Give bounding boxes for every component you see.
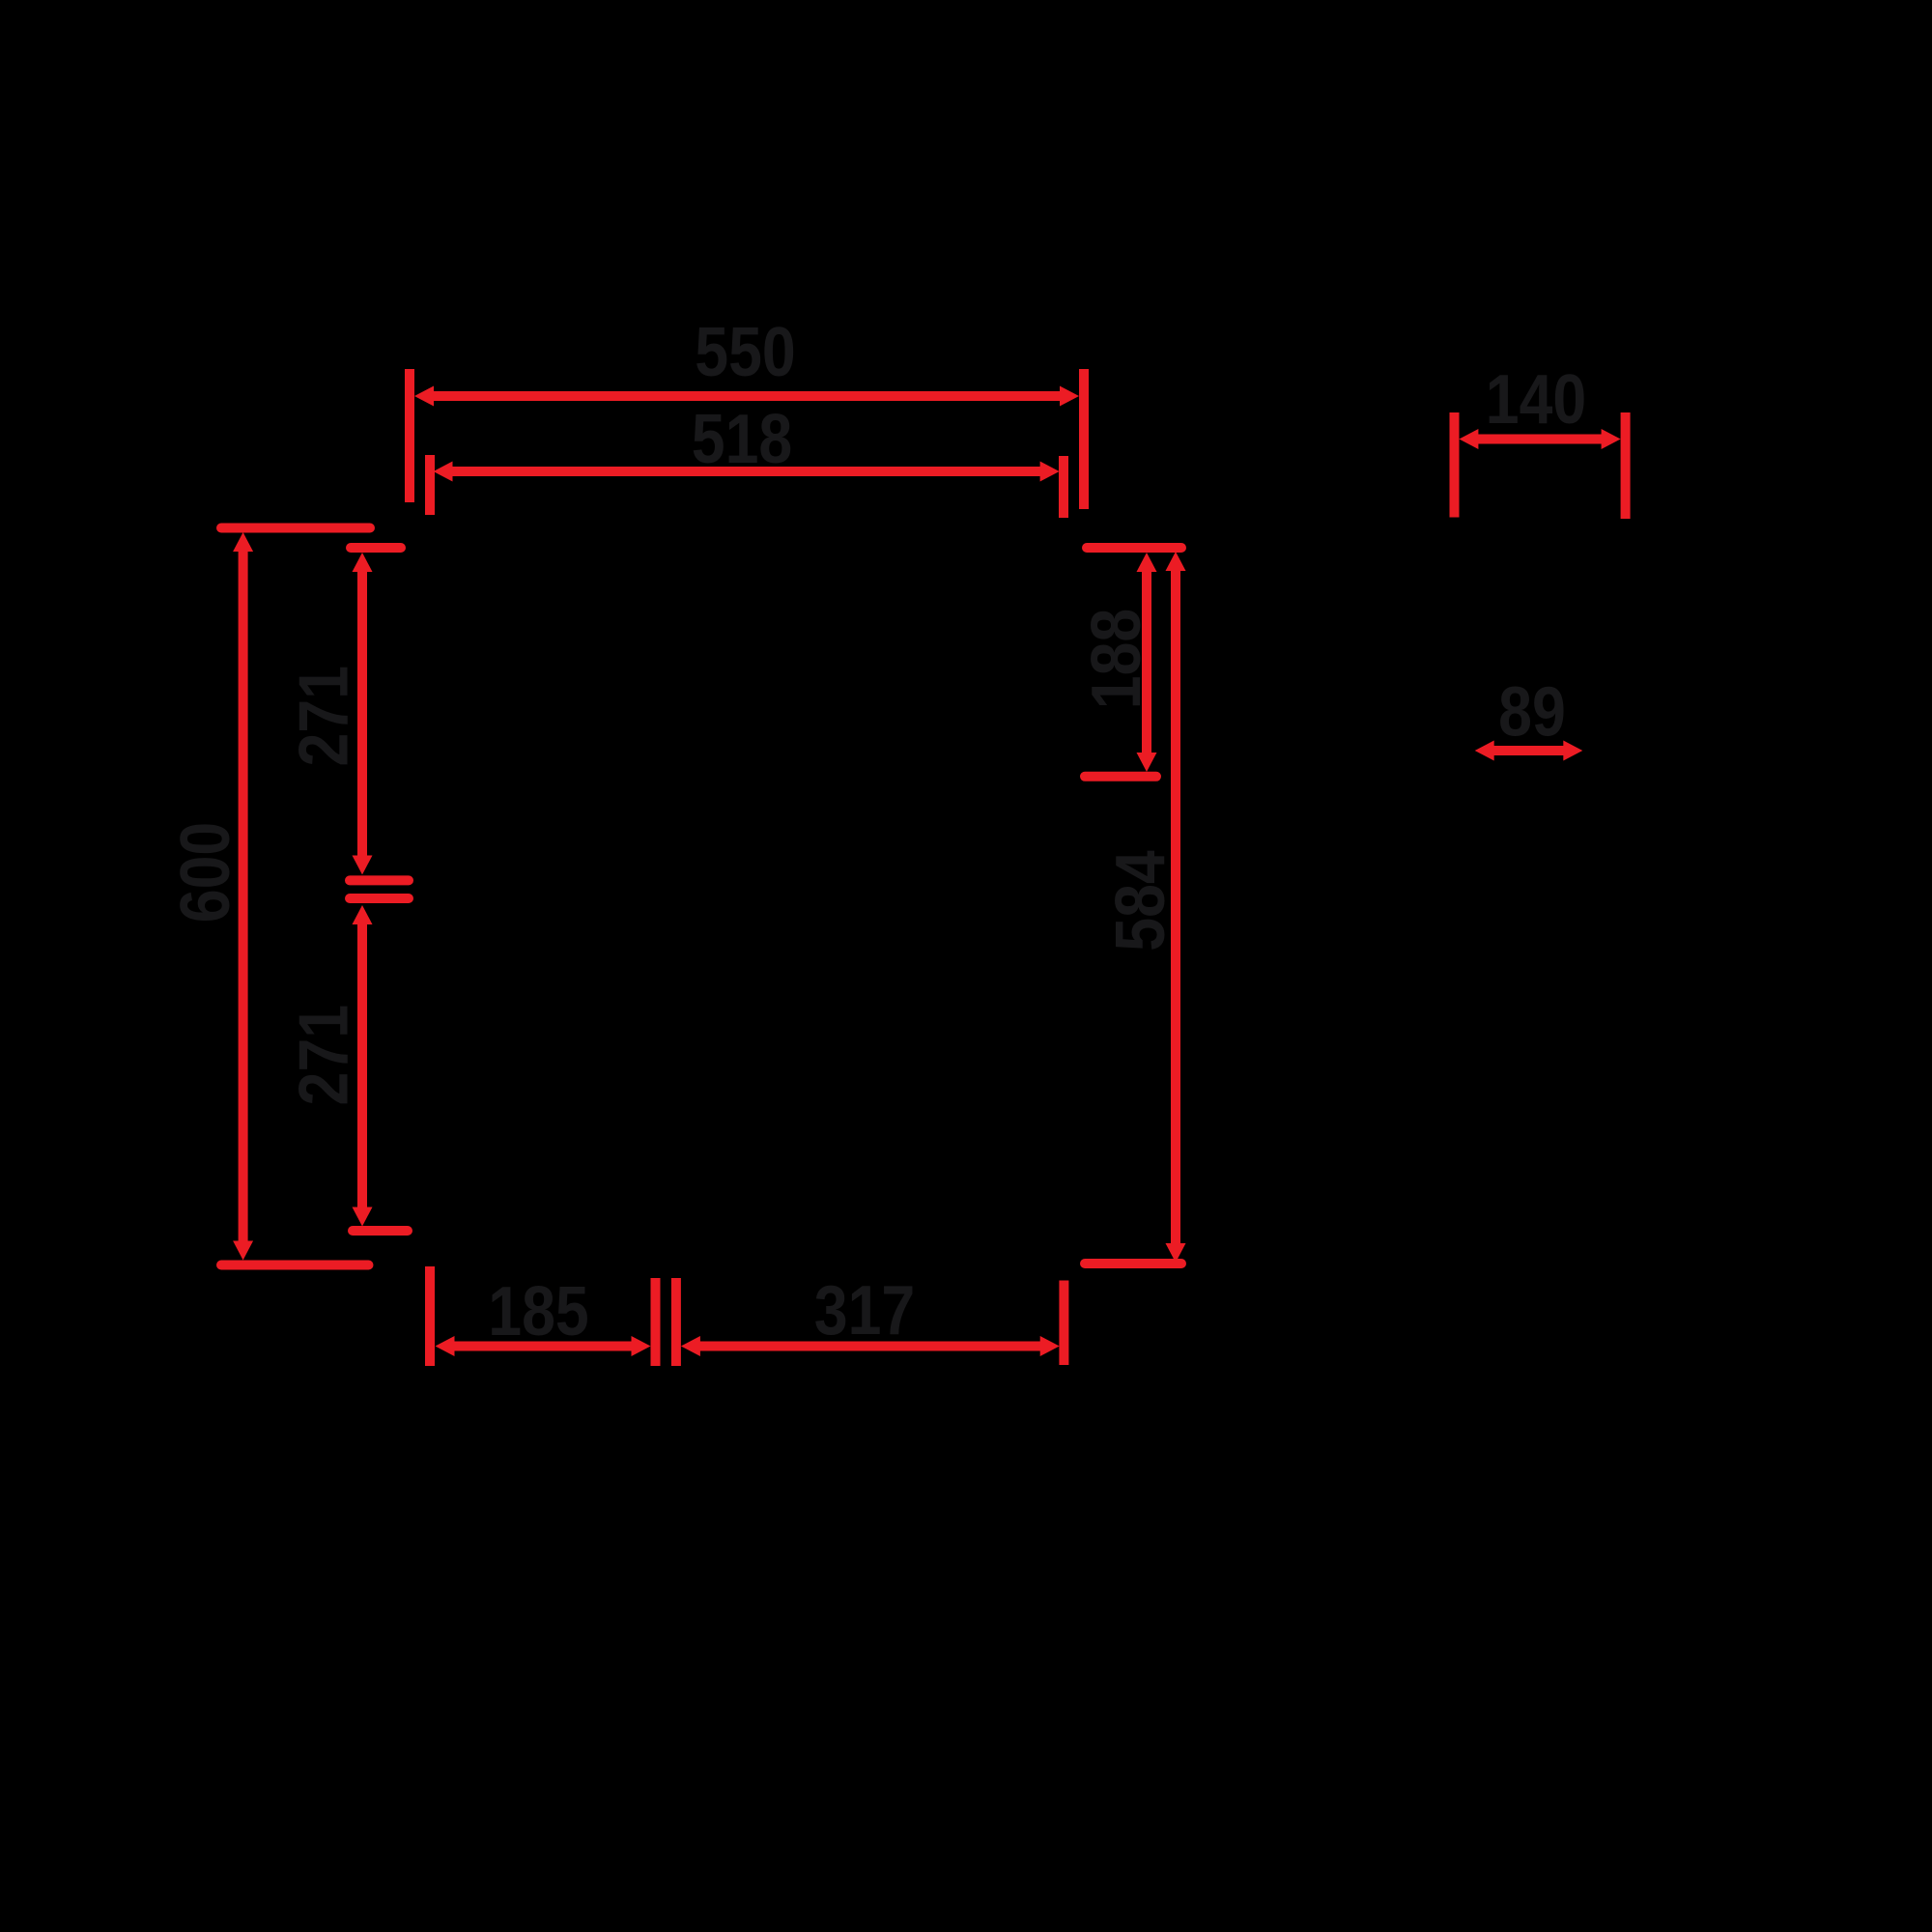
svg-text:584: 584	[1102, 850, 1179, 952]
svg-text:188: 188	[1078, 609, 1155, 709]
svg-text:185: 185	[488, 1273, 588, 1350]
svg-text:271: 271	[285, 1005, 362, 1105]
svg-text:89: 89	[1498, 673, 1566, 751]
svg-text:317: 317	[814, 1272, 915, 1350]
svg-text:271: 271	[285, 666, 362, 766]
svg-text:550: 550	[695, 314, 795, 391]
svg-text:518: 518	[692, 401, 792, 478]
svg-text:140: 140	[1486, 361, 1586, 439]
svg-text:600: 600	[167, 822, 244, 923]
